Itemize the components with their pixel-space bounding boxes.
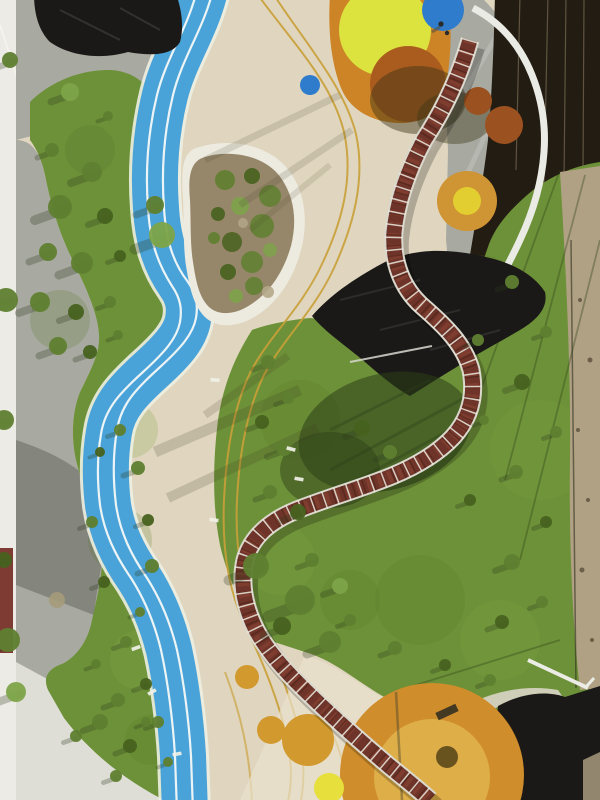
tree-canopy bbox=[273, 617, 291, 635]
tree-canopy bbox=[261, 355, 275, 369]
paint-dot-orange bbox=[485, 106, 523, 144]
tree-canopy bbox=[550, 426, 562, 438]
tree-canopy bbox=[95, 447, 105, 457]
tree-canopy bbox=[30, 292, 50, 312]
tree-canopy bbox=[540, 326, 552, 338]
tree-canopy bbox=[71, 252, 93, 274]
scene-canvas bbox=[0, 0, 600, 800]
tree-canopy bbox=[92, 714, 108, 730]
tree-canopy bbox=[123, 739, 137, 753]
tree-canopy bbox=[103, 111, 113, 121]
pedestrian bbox=[438, 21, 443, 26]
tree-canopy bbox=[111, 693, 125, 707]
tree-canopy bbox=[282, 392, 294, 404]
dirt-patch bbox=[49, 592, 65, 608]
gravel-corner bbox=[583, 752, 600, 800]
tree-canopy bbox=[39, 243, 57, 261]
tree-canopy bbox=[149, 222, 175, 248]
tree-canopy bbox=[290, 504, 306, 520]
tree-canopy bbox=[98, 576, 110, 588]
tree-canopy bbox=[439, 659, 451, 671]
tree-canopy bbox=[263, 485, 277, 499]
tree-canopy bbox=[146, 196, 164, 214]
tree-canopy bbox=[86, 516, 98, 528]
tree-canopy bbox=[68, 304, 84, 320]
tree-canopy bbox=[505, 275, 519, 289]
tree-canopy bbox=[140, 678, 152, 690]
park-aerial-photo bbox=[0, 0, 600, 800]
pedestrian bbox=[445, 31, 449, 35]
tree-canopy bbox=[141, 717, 151, 727]
tree-canopy bbox=[479, 415, 489, 425]
tree-canopy bbox=[135, 607, 145, 617]
tree-canopy bbox=[472, 334, 484, 346]
tree-canopy bbox=[536, 596, 548, 608]
tree-canopy bbox=[49, 337, 67, 355]
tree-canopy bbox=[540, 516, 552, 528]
tree-canopy bbox=[383, 445, 397, 459]
tree-canopy bbox=[354, 420, 370, 436]
tree-canopy bbox=[145, 559, 159, 573]
tree-canopy bbox=[114, 424, 126, 436]
tree-canopy bbox=[48, 195, 72, 219]
tree-canopy bbox=[2, 52, 18, 68]
tree-canopy bbox=[509, 465, 523, 479]
tree-canopy bbox=[120, 636, 132, 648]
tree-canopy bbox=[255, 415, 269, 429]
paint-target-inner bbox=[453, 187, 481, 215]
tree-canopy bbox=[484, 674, 496, 686]
paint-dot-blue bbox=[300, 75, 320, 95]
tree-canopy bbox=[388, 641, 402, 655]
paint-dot-orange bbox=[257, 716, 285, 744]
tree-canopy bbox=[152, 716, 164, 728]
tree-canopy bbox=[332, 578, 348, 594]
tree-canopy bbox=[91, 659, 101, 669]
debris-on-circle bbox=[436, 746, 458, 768]
tree-canopy bbox=[319, 631, 341, 653]
tree-canopy bbox=[243, 553, 269, 579]
tree-canopy bbox=[514, 374, 530, 390]
tree-canopy bbox=[6, 682, 26, 702]
tree-canopy bbox=[97, 208, 113, 224]
tree-canopy bbox=[305, 553, 319, 567]
tree-canopy bbox=[45, 143, 59, 157]
paint-dot-orange bbox=[235, 665, 259, 689]
tree-canopy bbox=[70, 730, 82, 742]
tree-canopy bbox=[114, 250, 126, 262]
tree-canopy bbox=[110, 770, 122, 782]
tree-canopy bbox=[285, 585, 315, 615]
tree-canopy bbox=[464, 494, 476, 506]
tree-canopy bbox=[104, 296, 116, 308]
tree-canopy bbox=[344, 614, 356, 626]
tree-canopy bbox=[142, 514, 154, 526]
sidewalk-strip bbox=[0, 0, 16, 800]
tree-canopy bbox=[82, 162, 102, 182]
tree-canopy bbox=[504, 554, 520, 570]
tree-canopy bbox=[113, 330, 123, 340]
tree-canopy bbox=[61, 83, 79, 101]
tree-canopy bbox=[83, 345, 97, 359]
tree-canopy bbox=[495, 615, 509, 629]
tree-canopy bbox=[131, 461, 145, 475]
tree-canopy bbox=[163, 757, 173, 767]
